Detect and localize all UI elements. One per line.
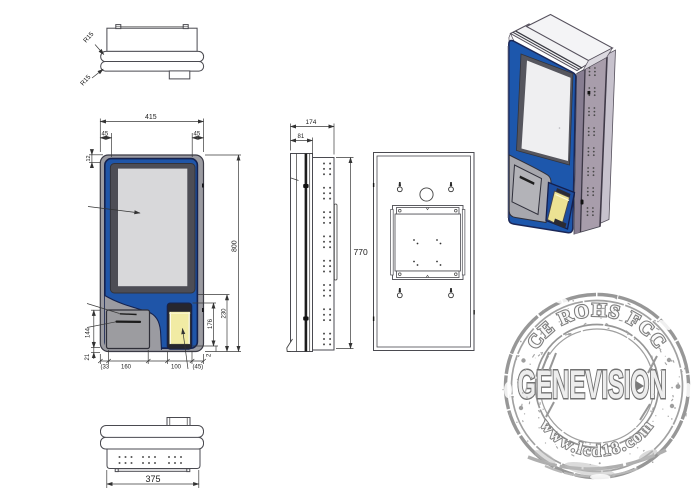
- svg-text:45: 45: [194, 132, 201, 138]
- svg-text:230: 230: [222, 308, 228, 319]
- svg-text:12: 12: [86, 155, 92, 161]
- svg-text:176: 176: [208, 318, 214, 329]
- svg-text:(33: (33: [101, 365, 110, 371]
- svg-text:R15: R15: [79, 74, 92, 88]
- svg-text:770: 770: [354, 247, 368, 257]
- svg-text:45: 45: [102, 132, 109, 138]
- svg-text:415: 415: [145, 114, 157, 121]
- svg-text:144: 144: [86, 327, 92, 338]
- svg-text:www.lcd18.com: www.lcd18.com: [536, 415, 657, 460]
- svg-text:GENEVISION: GENEVISION: [517, 362, 666, 407]
- svg-text:174: 174: [306, 119, 317, 126]
- svg-text:R15: R15: [82, 31, 95, 45]
- svg-text:(45): (45): [193, 365, 204, 371]
- svg-text:375: 375: [146, 474, 161, 484]
- svg-text:160: 160: [121, 365, 132, 371]
- svg-text:2: 2: [207, 353, 213, 357]
- svg-text:21: 21: [85, 353, 91, 360]
- svg-text:81: 81: [298, 134, 305, 140]
- svg-text:100: 100: [171, 365, 182, 371]
- svg-text:800: 800: [232, 240, 239, 252]
- svg-text:CE ROHS FCC: CE ROHS FCC: [523, 300, 670, 354]
